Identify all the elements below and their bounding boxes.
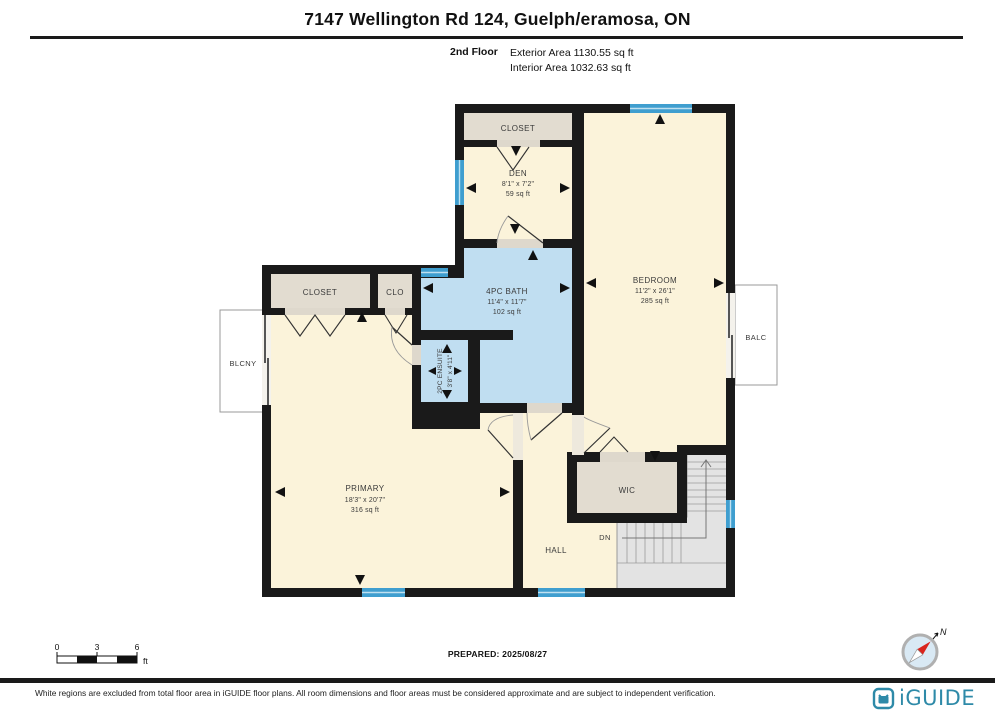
primary-dims: 18'3" x 20'7" [345,497,386,504]
closet-top-label: CLOSET [501,124,535,133]
den-area: 59 sq ft [506,191,530,198]
bedroom-label: BEDROOM [633,276,677,285]
window [421,268,448,277]
iguide-logo-text: iGUIDE [899,686,975,710]
balcony-left-label: BLCNY [229,359,256,368]
bath-area: 102 sq ft [493,309,521,316]
window [726,500,735,528]
down-label: DN [599,533,611,542]
window [455,160,464,205]
stairs-lower-run [617,517,726,588]
compass-icon: N [896,626,948,676]
window [362,588,405,597]
prepared-date: PREPARED: 2025/08/27 [0,649,995,659]
footer-divider [0,678,995,683]
floor-plan-drawing: CLOSET DEN 8'1" x 7'2" 59 sq ft BEDROOM … [0,0,995,720]
footer-disclaimer: White regions are excluded from total fl… [35,688,825,698]
compass-north-label: N [940,627,947,637]
ensuite-dims: 3'8" x 4'11" [447,355,454,388]
floor-plan-page: 7147 Wellington Rd 124, Guelph/eramosa, … [0,0,995,720]
bath-label: 4PC BATH [486,287,528,296]
bath-fill [513,248,572,403]
bath-corridor-fill [480,340,513,403]
balcony-right-label: BALC [745,333,766,342]
den-dims: 8'1" x 7'2" [502,181,535,188]
bath-dims: 11'4" x 11'7" [487,299,527,306]
wic-label: WIC [619,486,636,495]
bedroom-dims: 11'2" x 26'1" [635,288,675,295]
clo-label: CLO [386,288,404,297]
iguide-logo: iGUIDE [872,686,975,710]
bedroom-area: 285 sq ft [641,298,669,305]
primary-label: PRIMARY [345,484,384,493]
iguide-logo-icon [872,686,896,710]
closet-left-label: CLOSET [303,288,337,297]
primary-area: 316 sq ft [351,507,379,514]
den-label: DEN [509,169,527,178]
window [538,588,585,597]
ensuite-label: 2PC ENSUITE [437,348,444,394]
bath-fill [421,278,455,330]
window [630,104,692,113]
hall-label: HALL [545,546,567,555]
